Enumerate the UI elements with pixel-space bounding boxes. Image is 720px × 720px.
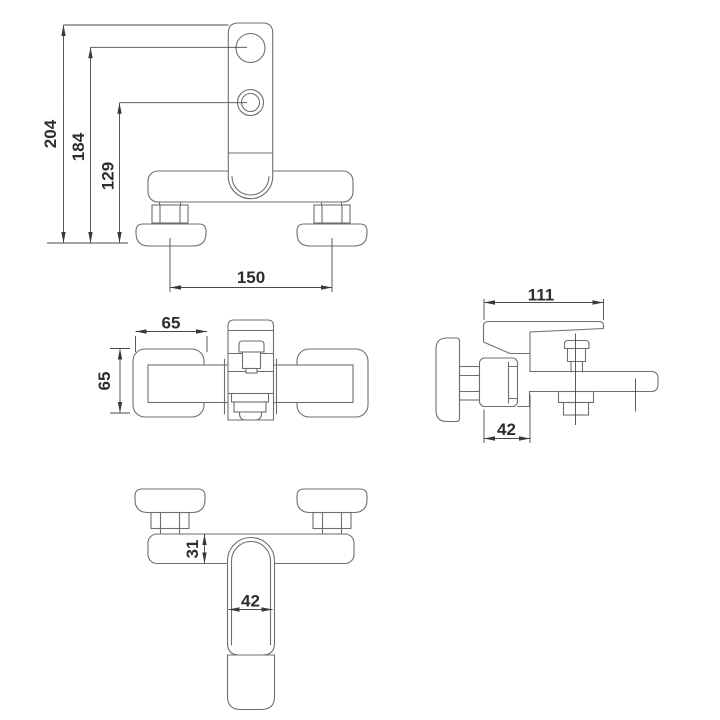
front-left-nut	[152, 205, 188, 223]
dimension-label-42-side: 42	[497, 420, 516, 439]
dimension-label-31: 31	[183, 540, 202, 559]
top-diverter-flange	[232, 394, 269, 403]
bottom-handle-cap	[228, 655, 275, 710]
front-view: 204 184 129 150	[41, 23, 367, 292]
bottom-right-nut	[313, 513, 351, 529]
front-left-escutcheon	[136, 224, 206, 246]
dimension-label-111: 111	[528, 285, 555, 304]
bottom-right-escutcheon	[297, 489, 367, 513]
front-dimension-lines	[47, 25, 332, 292]
dimension-label-129: 129	[98, 162, 117, 190]
top-cartridge-knob	[239, 341, 264, 352]
front-dimension-arrows	[61, 25, 332, 290]
bottom-left-escutcheon	[135, 489, 205, 513]
side-spout	[530, 372, 658, 392]
side-nut	[460, 367, 480, 401]
front-handle-outline	[228, 23, 272, 199]
side-wall-escutcheon	[436, 338, 460, 422]
top-view: 65 65	[95, 313, 368, 420]
drawing-sheet: 204 184 129 150 65 65	[0, 0, 720, 720]
dimension-label-65-width: 65	[162, 313, 181, 332]
side-view: 111 42	[436, 285, 658, 443]
dimension-label-204: 204	[41, 119, 60, 148]
bottom-left-nut	[151, 513, 189, 529]
dimension-label-42-bottom: 42	[241, 591, 260, 610]
dimension-label-184: 184	[69, 132, 88, 161]
side-shower-outlet	[559, 392, 594, 403]
front-right-nut	[314, 205, 350, 223]
faucet-technical-drawing: 204 184 129 150 65 65	[0, 0, 720, 720]
side-valve-body	[480, 358, 518, 407]
dimension-label-65-depth: 65	[95, 372, 114, 391]
side-diverter-knob	[565, 341, 590, 349]
bottom-view: 31 42	[135, 489, 367, 710]
dimension-label-150: 150	[237, 268, 265, 287]
